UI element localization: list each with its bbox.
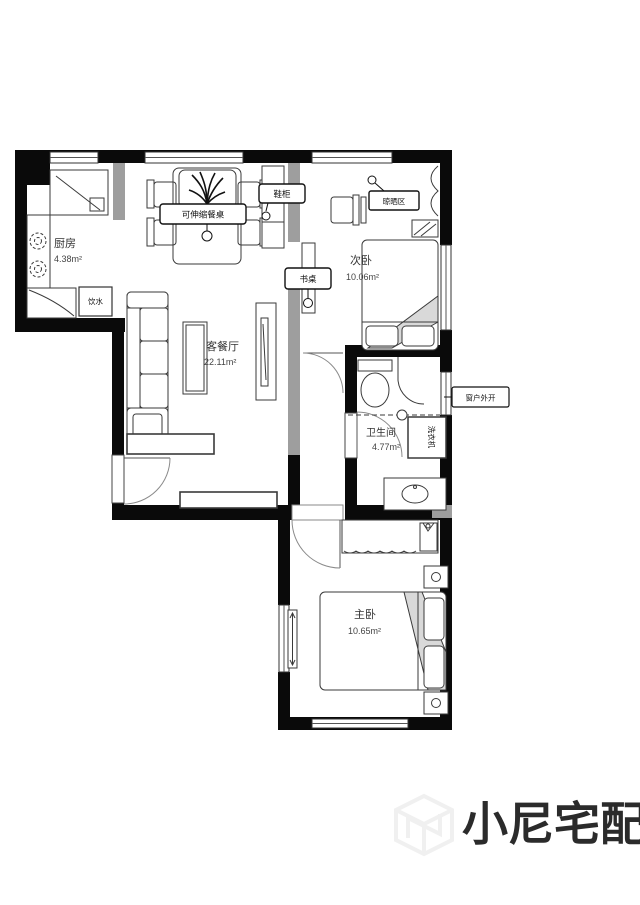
side-cabinet [127,434,214,454]
sofa [127,292,168,448]
master-bedroom: 主卧 10.65m² [288,520,448,714]
bathroom-window [441,372,451,415]
drying-area-tag: 晾晒区 [368,176,419,210]
drying-area-tag-text: 晾晒区 [383,196,406,206]
bathroom-name: 卫生间 [366,426,396,439]
hanging-shirt-icon [420,523,437,551]
floor-drain [397,410,407,420]
kitchen-sink-counter [50,170,108,215]
floor-plan-page: 小尼宅配 [0,0,640,905]
second-bedroom-side-window [441,245,451,330]
tv-cabinet [256,303,276,400]
second-bedroom-door [303,353,343,393]
living-area: 22.11m² [204,357,236,367]
master-bedroom-door [292,505,343,568]
second-bedroom-nightstand [412,220,438,237]
master-name: 主卧 [354,608,376,621]
toilet [358,360,392,407]
kitchen-partition [113,163,125,220]
floor-plan-drawing: 小尼宅配 [0,0,640,905]
shower-door [398,357,424,404]
bathroom-area: 4.77m² [372,442,400,452]
kitchen-window [50,152,98,163]
living-name: 客餐厅 [206,339,239,353]
shoe-cabinet [262,166,284,248]
living-room: 客餐厅 22.11m² [127,292,277,508]
second-bedroom-bed [362,240,438,350]
second-bedroom: 书桌 晾晒区 次卧 10.06m² [285,166,438,350]
watermark-brand-text: 小尼宅配 [462,798,640,850]
master-bottom-window [312,719,408,728]
curtain [431,166,438,216]
entry-door [112,455,170,504]
dining-table-tag-text: 可伸缩餐桌 [182,210,225,220]
master-bed [320,592,446,690]
desk-tag-text: 书桌 [299,274,317,284]
second-bedroom-area: 10.06m² [346,272,379,282]
dining-area: 可伸缩餐桌 [147,168,267,264]
bathroom: 洗衣机 卫生间 4.77m² 窗户外开 [348,357,509,510]
second-bedroom-top-window [312,152,392,163]
second-bedroom-name: 次卧 [350,253,372,267]
bath-left-wall-upper [345,357,357,413]
cube-n-logo-icon [396,796,452,854]
bathroom-sink [384,478,446,510]
brand-watermark: 小尼宅配 [396,796,640,854]
washing-machine: 洗衣机 [408,417,446,458]
bench-cabinet [180,492,277,508]
kitchen-name: 厨房 [54,237,76,250]
window-note-text: 窗户外开 [466,393,496,403]
dining-window [145,152,243,163]
wardrobe [342,520,438,553]
desk-chair [331,195,366,225]
master-nightstand-bottom [424,692,448,714]
master-area: 10.65m² [348,626,381,636]
kitchen-room: 饮水 厨房 4.38m² [27,170,112,318]
fridge [27,288,76,318]
water-dispenser-label: 饮水 [88,296,103,306]
washing-machine-label: 洗衣机 [427,426,437,449]
kitchen-area: 4.38m² [54,254,82,264]
radiator [288,610,297,668]
water-dispenser: 饮水 [79,287,112,316]
hall-wall-corner [288,455,300,507]
hall-partition-lower [288,282,300,455]
shoe-cabinet-tag-text: 鞋柜 [273,189,291,199]
window-note-tag: 窗户外开 [444,387,509,407]
master-nightstand-top [424,566,448,588]
